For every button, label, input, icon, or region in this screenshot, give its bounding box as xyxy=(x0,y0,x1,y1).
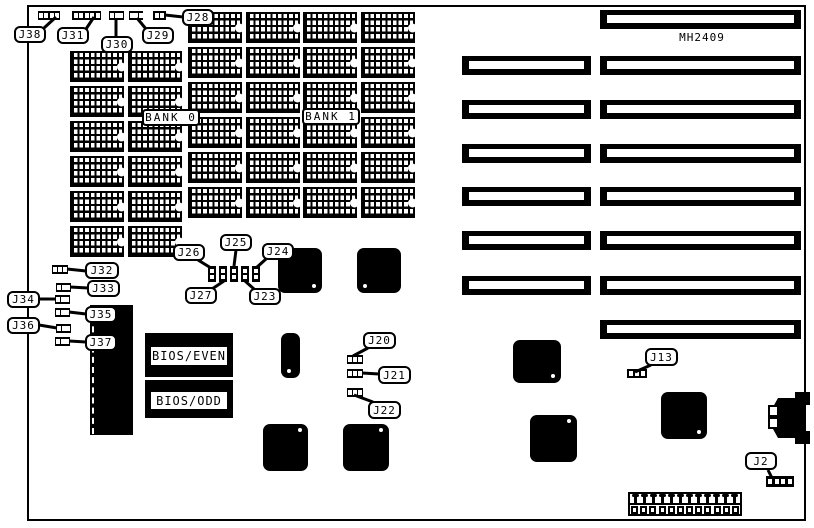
dram-chip xyxy=(70,121,124,152)
dram-chip xyxy=(303,47,357,78)
power-pin xyxy=(686,494,693,503)
dram-chip xyxy=(361,47,415,78)
jumper-pin xyxy=(56,339,60,344)
jumper-header xyxy=(109,11,124,20)
power-pin xyxy=(641,494,648,503)
jumper-pin xyxy=(58,267,62,272)
dram-chip xyxy=(128,191,182,222)
dram-chip xyxy=(246,12,300,43)
dram-chip xyxy=(361,117,415,148)
jumper-pin xyxy=(635,371,639,376)
jumper-pin xyxy=(232,269,236,273)
slot-contact-stripe xyxy=(607,325,794,333)
callout-j26: J26 xyxy=(173,244,205,261)
jumper-header xyxy=(766,476,794,487)
jumper-header xyxy=(219,266,227,282)
jumper-pin xyxy=(39,13,43,18)
jumper-header xyxy=(56,283,71,292)
jumper-header xyxy=(241,266,249,282)
jumper-pin xyxy=(130,13,134,18)
pin1-dot xyxy=(551,374,555,378)
pin1-dot xyxy=(567,419,571,423)
slot-contact-stripe xyxy=(469,149,584,157)
dram-chip xyxy=(246,82,300,113)
pin1-dot xyxy=(287,369,291,373)
callout-j35: J35 xyxy=(85,306,117,323)
callout-j21: J21 xyxy=(378,366,411,384)
jumper-pin xyxy=(254,269,258,273)
dram-chip xyxy=(246,187,300,218)
callout-j23: J23 xyxy=(249,288,281,305)
slot-contact-stripe xyxy=(607,236,794,244)
isa-slot-long xyxy=(600,276,801,295)
isa-slot-short xyxy=(462,144,591,163)
callout-j38: J38 xyxy=(14,26,46,43)
jumper-pin xyxy=(56,310,60,315)
dram-chip xyxy=(188,47,242,78)
callout-j2: J2 xyxy=(745,452,777,470)
power-socket-row xyxy=(630,505,740,514)
pin1-dot xyxy=(298,428,302,432)
bios-even-label: BIOS/EVEN xyxy=(151,347,227,365)
jumper-header xyxy=(55,337,70,346)
callout-j13: J13 xyxy=(645,348,678,366)
callout-j30: J30 xyxy=(101,36,133,53)
isa-slot-short xyxy=(462,231,591,250)
isa-slot-long xyxy=(600,100,801,119)
jumper-header xyxy=(208,266,216,282)
jumper-pin xyxy=(155,13,159,18)
slot-contact-stripe xyxy=(607,192,794,200)
dram-chip xyxy=(361,187,415,218)
callout-j20: J20 xyxy=(363,332,396,349)
dram-chip xyxy=(361,152,415,183)
slot-contact-stripe xyxy=(469,281,584,289)
jumper-pin xyxy=(61,310,65,315)
dram-chip xyxy=(303,12,357,43)
power-socket xyxy=(668,506,675,514)
jumper-header xyxy=(627,369,647,378)
jumper-header xyxy=(38,11,60,20)
power-pin xyxy=(731,494,738,503)
jumper-pin xyxy=(629,371,633,376)
dram-chip xyxy=(70,156,124,187)
slot-contact-stripe xyxy=(469,236,584,244)
jumper-pin xyxy=(781,479,785,484)
jumper-pin xyxy=(348,371,352,376)
dram-chip xyxy=(188,187,242,218)
jumper-pin xyxy=(85,13,89,18)
jumper-pin xyxy=(358,390,362,395)
jumper-pin xyxy=(61,339,65,344)
jumper-pin xyxy=(50,13,54,18)
callout-j29: J29 xyxy=(142,27,174,44)
jumper-pin xyxy=(44,13,48,18)
jumper-pin xyxy=(53,267,57,272)
jumper-header xyxy=(129,11,143,20)
dram-chip xyxy=(70,51,124,82)
power-pin xyxy=(650,494,657,503)
jumper-pin xyxy=(221,275,225,279)
jumper-pin xyxy=(79,13,83,18)
jumper-pin xyxy=(210,269,214,273)
bank1-label: BANK 1 xyxy=(302,108,360,125)
jumper-pin xyxy=(96,13,100,18)
callout-j32: J32 xyxy=(85,262,119,279)
board-title: MH2409 xyxy=(660,31,744,44)
jumper-header xyxy=(55,295,70,304)
power-socket xyxy=(640,506,647,514)
callout-j33: J33 xyxy=(87,280,120,297)
power-socket xyxy=(704,506,711,514)
isa-slot-long xyxy=(600,187,801,206)
isa-slot-long xyxy=(600,144,801,163)
dram-chip xyxy=(303,187,357,218)
jumper-header xyxy=(252,266,260,282)
jumper-pin xyxy=(775,479,779,484)
jumper-pin xyxy=(115,13,119,18)
jumper-pin xyxy=(243,269,247,273)
jumper-pin xyxy=(348,357,352,362)
board-outline xyxy=(27,5,806,521)
jumper-pin xyxy=(56,297,60,302)
slot-contact-stripe xyxy=(607,61,794,69)
jumper-pin xyxy=(90,13,94,18)
power-socket xyxy=(649,506,656,514)
pin1-dot xyxy=(697,430,701,434)
isa-slot-long xyxy=(600,231,801,250)
jumper-pin xyxy=(62,326,66,331)
cpu-chip xyxy=(90,305,133,435)
dram-chip xyxy=(303,152,357,183)
jumper-pin xyxy=(62,285,66,290)
jumper-pin xyxy=(55,13,59,18)
isa-slot-long xyxy=(600,56,801,75)
power-pin xyxy=(713,494,720,503)
power-pin xyxy=(659,494,666,503)
callout-j37: J37 xyxy=(85,334,117,351)
bios-even-chip: BIOS/EVEN xyxy=(145,333,233,377)
jumper-pin xyxy=(221,269,225,273)
jumper-pin xyxy=(65,310,69,315)
isa-slot-short xyxy=(462,276,591,295)
power-pin xyxy=(695,494,702,503)
callout-j25: J25 xyxy=(220,234,252,251)
jumper-pin xyxy=(57,285,61,290)
jumper-pin xyxy=(134,13,138,18)
dram-chip xyxy=(188,152,242,183)
isa-slot-short xyxy=(462,56,591,75)
power-pin xyxy=(704,494,711,503)
ic-chip xyxy=(263,424,308,471)
power-socket xyxy=(732,506,739,514)
bios-odd-chip: BIOS/ODD xyxy=(145,380,233,418)
power-socket xyxy=(695,506,702,514)
callout-j22: J22 xyxy=(368,401,401,419)
dram-chip xyxy=(246,152,300,183)
callout-j24: J24 xyxy=(262,243,294,260)
jumper-pin xyxy=(232,275,236,279)
bios-odd-label: BIOS/ODD xyxy=(151,392,227,409)
ic-chip xyxy=(513,340,561,383)
jumper-pin xyxy=(74,13,78,18)
dram-chip xyxy=(361,82,415,113)
isa-slot-long xyxy=(600,320,801,339)
jumper-header xyxy=(55,308,70,317)
power-pin xyxy=(668,494,675,503)
dram-chip xyxy=(70,191,124,222)
power-socket xyxy=(686,506,693,514)
jumper-header xyxy=(56,324,71,333)
slot-contact-stripe xyxy=(607,149,794,157)
jumper-pin xyxy=(61,297,65,302)
jumper-pin xyxy=(788,479,792,484)
jumper-header xyxy=(347,355,363,364)
jumper-pin xyxy=(358,357,362,362)
jumper-pin xyxy=(110,13,114,18)
power-socket xyxy=(723,506,730,514)
dram-chip xyxy=(70,86,124,117)
jumper-pin xyxy=(66,326,70,331)
jumper-pin xyxy=(63,267,67,272)
power-pin xyxy=(722,494,729,503)
jumper-pin xyxy=(243,275,247,279)
power-socket xyxy=(631,506,638,514)
callout-j34: J34 xyxy=(7,291,40,308)
power-pin xyxy=(677,494,684,503)
ic-chip xyxy=(281,333,300,378)
power-socket xyxy=(659,506,666,514)
ic-chip xyxy=(343,424,389,471)
jumper-header xyxy=(153,11,166,20)
ic-chip xyxy=(530,415,577,462)
slot-contact-stripe xyxy=(469,105,584,113)
jumper-header xyxy=(52,265,68,274)
dram-chip xyxy=(128,156,182,187)
callout-j27: J27 xyxy=(185,287,217,304)
power-pin xyxy=(632,494,639,503)
jumper-pin xyxy=(65,339,69,344)
jumper-header xyxy=(72,11,101,20)
jumper-pin xyxy=(353,390,357,395)
jumper-pin xyxy=(139,13,143,18)
pin1-dot xyxy=(379,428,383,432)
jumper-pin xyxy=(65,297,69,302)
callout-j28: J28 xyxy=(182,9,214,26)
jumper-pin xyxy=(254,275,258,279)
jumper-pin xyxy=(57,326,61,331)
dram-chip xyxy=(128,51,182,82)
jumper-pin xyxy=(119,13,123,18)
slot-contact-stripe xyxy=(469,192,584,200)
isa-slot-short xyxy=(462,100,591,119)
jumper-pin xyxy=(768,479,772,484)
jumper-pin xyxy=(358,371,362,376)
isa-slot-short xyxy=(462,187,591,206)
power-pin-row xyxy=(630,494,740,503)
dram-chip xyxy=(70,226,124,257)
jumper-header xyxy=(230,266,238,282)
power-socket xyxy=(677,506,684,514)
slot-contact-stripe xyxy=(607,281,794,289)
motherboard-diagram: BANK 0 BANK 1 MH2409 BIOS/EVEN BIOS/ODD xyxy=(0,0,814,528)
jumper-header xyxy=(347,388,363,397)
callout-j36: J36 xyxy=(7,317,40,334)
pin1-dot xyxy=(312,284,316,288)
isa-slot-long xyxy=(600,10,801,29)
callout-j31: J31 xyxy=(57,27,89,44)
power-connector xyxy=(628,492,742,516)
power-socket xyxy=(714,506,721,514)
pin1-dot xyxy=(363,284,367,288)
jumper-pin xyxy=(66,285,70,290)
bank0-label: BANK 0 xyxy=(142,109,200,126)
jumper-pin xyxy=(210,275,214,279)
jumper-pin xyxy=(348,390,352,395)
jumper-pin xyxy=(160,13,164,18)
ic-chip xyxy=(661,392,707,439)
dram-chip xyxy=(246,117,300,148)
slot-contact-stripe xyxy=(607,105,794,113)
jumper-pin xyxy=(353,357,357,362)
jumper-header xyxy=(347,369,363,378)
ic-chip xyxy=(357,248,401,293)
jumper-pin xyxy=(353,371,357,376)
jumper-pin xyxy=(641,371,645,376)
slot-contact-stripe xyxy=(469,61,584,69)
dram-chip xyxy=(246,47,300,78)
dram-chip xyxy=(361,12,415,43)
slot-contact-stripe xyxy=(607,15,794,23)
